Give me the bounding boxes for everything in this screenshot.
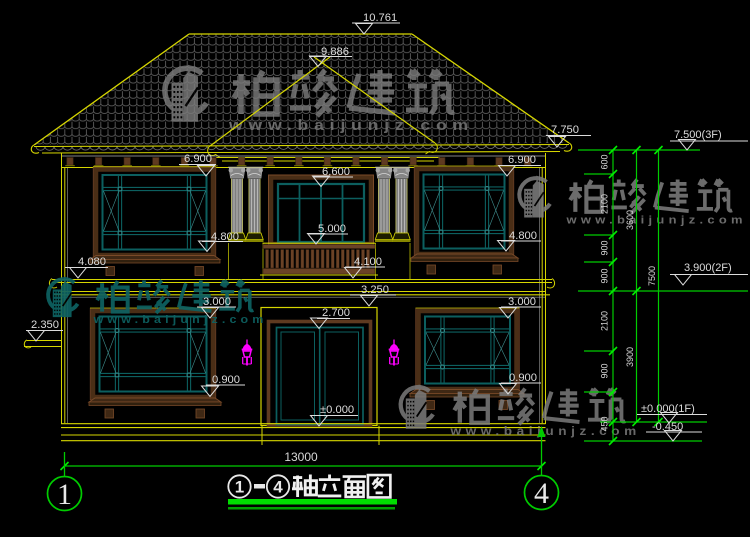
svg-text:2100: 2100 xyxy=(600,311,610,331)
svg-text:7500: 7500 xyxy=(647,266,657,286)
svg-text:3900: 3900 xyxy=(625,347,635,367)
svg-text:900: 900 xyxy=(600,268,610,283)
svg-text:4.080: 4.080 xyxy=(78,256,106,268)
svg-text:0.900: 0.900 xyxy=(509,372,537,384)
svg-text:6.900: 6.900 xyxy=(508,154,536,166)
svg-text:3.000: 3.000 xyxy=(508,296,536,308)
svg-text:450: 450 xyxy=(600,416,610,431)
svg-text:7.750: 7.750 xyxy=(551,124,579,136)
svg-text:±0.000(1F): ±0.000(1F) xyxy=(641,403,695,415)
svg-text:1: 1 xyxy=(57,478,72,511)
svg-text:4: 4 xyxy=(534,477,549,510)
svg-text:3.900(2F): 3.900(2F) xyxy=(684,262,732,274)
svg-text:10.761: 10.761 xyxy=(363,12,397,24)
svg-text:4: 4 xyxy=(273,478,283,497)
svg-text:3600: 3600 xyxy=(625,210,635,230)
svg-text:3.000: 3.000 xyxy=(203,296,231,308)
svg-text:3.250: 3.250 xyxy=(361,284,389,296)
svg-text:2100: 2100 xyxy=(600,194,610,214)
svg-text:600: 600 xyxy=(600,154,610,169)
svg-text:1: 1 xyxy=(235,478,244,497)
svg-text:±0.000: ±0.000 xyxy=(320,404,354,416)
svg-text:4.100: 4.100 xyxy=(354,256,382,268)
svg-text:900: 900 xyxy=(600,240,610,255)
svg-text:900: 900 xyxy=(600,363,610,378)
svg-text:2.350: 2.350 xyxy=(31,319,59,331)
svg-text:0.900: 0.900 xyxy=(212,374,240,386)
svg-text:-0.450: -0.450 xyxy=(652,421,683,433)
svg-text:6.900: 6.900 xyxy=(184,153,212,165)
svg-text:2.700: 2.700 xyxy=(322,307,350,319)
svg-text:13000: 13000 xyxy=(284,450,318,464)
